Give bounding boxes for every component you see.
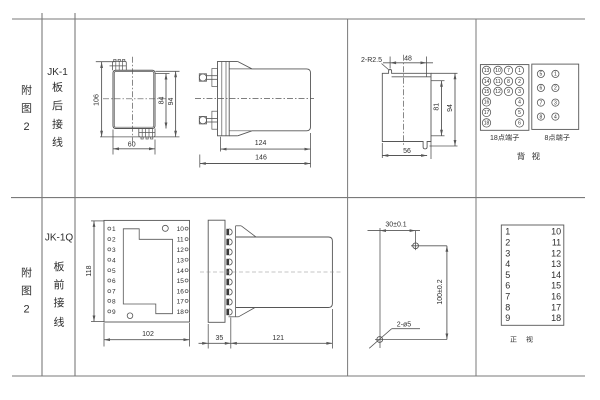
svg-text:118: 118 [86,265,93,276]
svg-text:5: 5 [112,268,116,275]
svg-text:6: 6 [540,86,543,92]
svg-text:13: 13 [551,259,561,269]
svg-text:9: 9 [112,309,116,316]
svg-text:13: 13 [177,257,185,264]
svg-text:16: 16 [177,289,185,296]
svg-text:8: 8 [545,135,549,142]
svg-text:3: 3 [518,89,521,95]
svg-text:3: 3 [554,100,557,106]
svg-text:16: 16 [551,292,561,302]
svg-text:8: 8 [507,79,510,85]
svg-text:30±0.1: 30±0.1 [385,222,406,229]
svg-text:7: 7 [507,68,510,74]
svg-text:3: 3 [505,248,510,258]
svg-text:1: 1 [554,72,557,78]
svg-text:4: 4 [505,259,510,269]
svg-text:10: 10 [495,68,501,74]
svg-text:100±0.2: 100±0.2 [437,279,444,304]
svg-text:17: 17 [551,302,561,312]
svg-text:13: 13 [484,68,490,74]
svg-text:14: 14 [551,270,561,280]
svg-text:7: 7 [112,289,116,296]
svg-text:1: 1 [518,68,521,74]
svg-text:14: 14 [484,79,490,85]
svg-text:84: 84 [159,97,166,105]
svg-text:18: 18 [490,135,498,142]
svg-text:1: 1 [505,227,510,237]
svg-text:121: 121 [272,335,284,342]
svg-text:8: 8 [540,114,543,120]
svg-text:4: 4 [112,257,116,264]
svg-text:5: 5 [540,72,543,78]
svg-text:6: 6 [505,281,510,291]
svg-text:6: 6 [112,278,116,285]
svg-text:10: 10 [551,227,561,237]
svg-text:12: 12 [495,89,501,95]
svg-text:15: 15 [177,278,185,285]
svg-text:18: 18 [551,313,561,323]
svg-text:16: 16 [484,100,490,106]
svg-text:11: 11 [552,238,561,248]
svg-text:102: 102 [142,331,154,338]
svg-text:48: 48 [404,55,412,62]
svg-text:2-ø5: 2-ø5 [397,322,412,329]
svg-text:1: 1 [112,226,116,233]
svg-text:5: 5 [505,270,510,280]
svg-text:8: 8 [112,299,116,306]
svg-text:17: 17 [177,299,185,306]
svg-text:2: 2 [112,237,116,244]
svg-text:8: 8 [505,302,510,312]
svg-text:94: 94 [168,98,175,106]
svg-text:12: 12 [551,248,561,258]
svg-text:10: 10 [177,226,185,233]
svg-text:15: 15 [484,89,490,95]
svg-text:14: 14 [177,268,185,275]
svg-text:2: 2 [554,86,557,92]
svg-text:2: 2 [505,238,510,248]
svg-text:9: 9 [505,313,510,323]
svg-text:18: 18 [484,121,490,127]
svg-text:4: 4 [518,100,521,106]
svg-text:2: 2 [23,304,29,316]
svg-text:81: 81 [434,103,441,111]
svg-text:18: 18 [177,309,185,316]
svg-text:5: 5 [518,110,521,116]
svg-text:4: 4 [554,114,557,120]
svg-text:60: 60 [128,141,136,148]
svg-text:2: 2 [518,79,521,85]
svg-text:106: 106 [93,94,100,106]
svg-text:12: 12 [177,247,185,254]
svg-text:94: 94 [447,104,454,112]
svg-text:6: 6 [518,121,521,127]
svg-text:JK-1: JK-1 [47,67,68,78]
svg-text:7: 7 [505,292,510,302]
svg-text:JK-1Q: JK-1Q [45,233,74,244]
svg-text:35: 35 [216,335,224,342]
svg-text:2: 2 [23,121,29,133]
svg-text:11: 11 [495,79,500,85]
svg-text:17: 17 [484,110,490,116]
svg-text:9: 9 [507,89,510,95]
svg-text:124: 124 [255,140,267,147]
svg-text:56: 56 [403,148,411,155]
svg-text:3: 3 [112,247,116,254]
svg-text:11: 11 [177,237,184,244]
svg-text:146: 146 [255,155,267,162]
svg-text:15: 15 [551,281,561,291]
svg-text:2-R2.5: 2-R2.5 [361,57,382,64]
svg-text:7: 7 [540,100,543,106]
